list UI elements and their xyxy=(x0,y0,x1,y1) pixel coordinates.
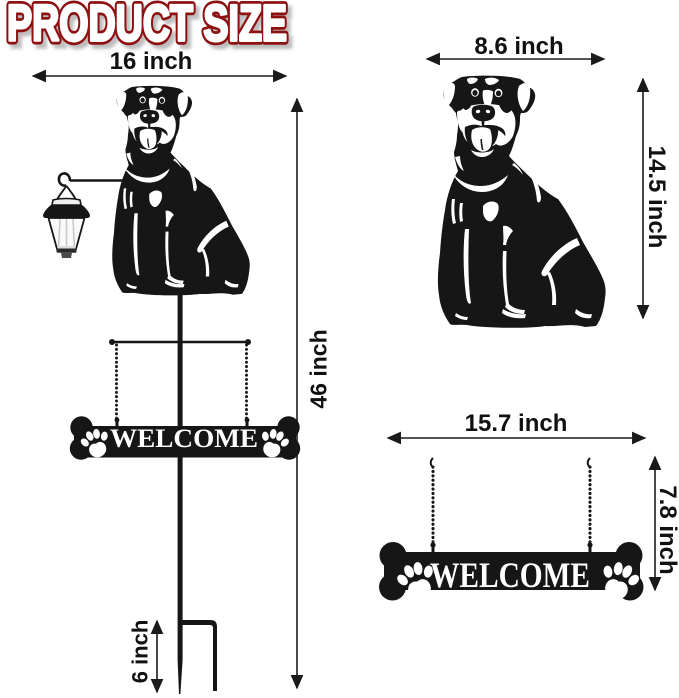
svg-text:16 inch: 16 inch xyxy=(110,48,193,75)
svg-text:6 inch: 6 inch xyxy=(128,620,153,684)
svg-text:PRODUCT SIZE: PRODUCT SIZE xyxy=(7,0,287,52)
svg-text:46 inch: 46 inch xyxy=(306,329,332,408)
svg-text:WELCOME: WELCOME xyxy=(110,424,258,453)
svg-text:15.7 inch: 15.7 inch xyxy=(465,410,568,437)
svg-text:7.8 inch: 7.8 inch xyxy=(654,485,679,574)
svg-text:14.5 inch: 14.5 inch xyxy=(643,146,670,249)
svg-text:8.6 inch: 8.6 inch xyxy=(474,33,563,60)
svg-text:WELCOME: WELCOME xyxy=(430,555,590,595)
